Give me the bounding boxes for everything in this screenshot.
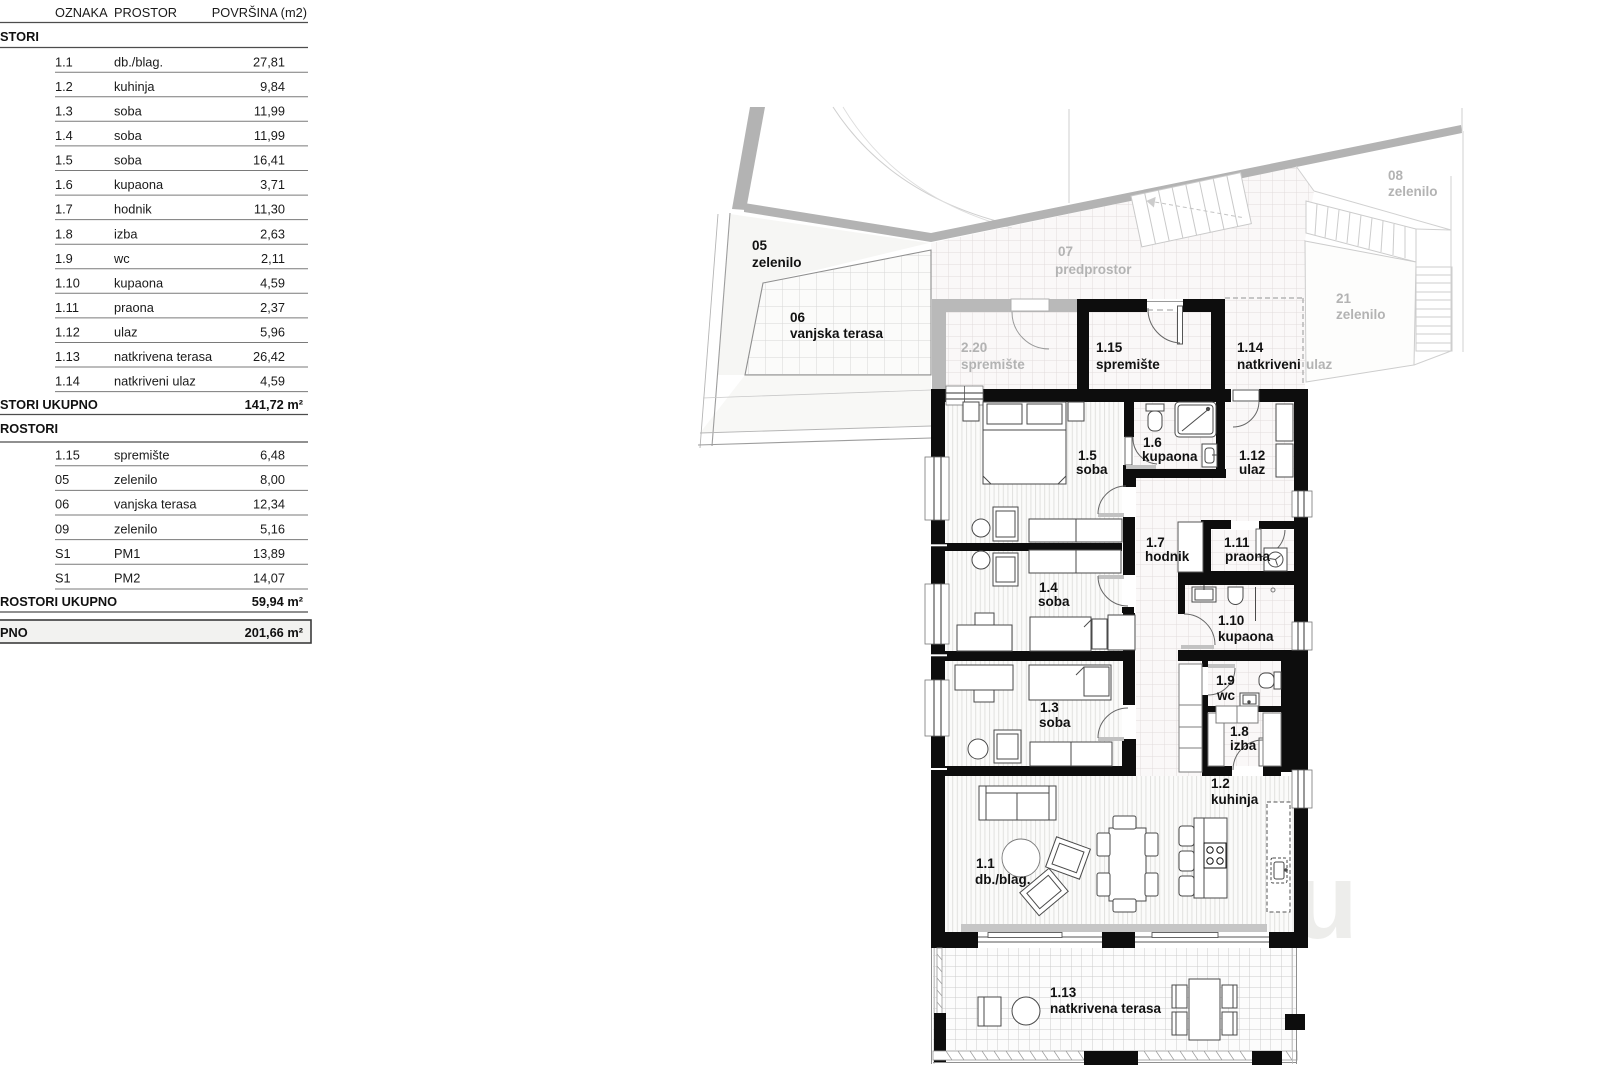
svg-text:1.8: 1.8: [55, 226, 73, 241]
svg-text:1.10: 1.10: [1218, 613, 1244, 628]
svg-text:4,59: 4,59: [260, 275, 285, 290]
svg-text:2,37: 2,37: [260, 300, 285, 315]
svg-text:soba: soba: [1076, 462, 1108, 477]
svg-text:1.9: 1.9: [55, 251, 73, 266]
svg-text:1.14: 1.14: [1237, 340, 1264, 355]
svg-text:PM2: PM2: [114, 571, 140, 586]
svg-text:05: 05: [752, 238, 768, 253]
svg-text:natkriveni: natkriveni: [1237, 357, 1301, 372]
svg-text:zelenilo: zelenilo: [114, 521, 157, 536]
svg-text:6,48: 6,48: [260, 448, 285, 463]
svg-text:1.6: 1.6: [1143, 435, 1162, 450]
svg-text:izba: izba: [114, 226, 138, 241]
svg-text:db./blag.: db./blag.: [975, 872, 1031, 887]
svg-text:PNO: PNO: [0, 625, 28, 640]
svg-text:11,30: 11,30: [254, 202, 285, 217]
svg-text:141,72 m²: 141,72 m²: [245, 397, 303, 412]
svg-text:1.4: 1.4: [55, 128, 73, 143]
svg-text:11,99: 11,99: [254, 128, 285, 143]
svg-text:1.5: 1.5: [1078, 448, 1097, 463]
svg-text:06: 06: [55, 497, 69, 512]
svg-text:21: 21: [1336, 291, 1352, 306]
svg-text:2,63: 2,63: [260, 226, 285, 241]
svg-text:1.12: 1.12: [55, 325, 80, 340]
svg-text:kuhinja: kuhinja: [114, 79, 155, 94]
svg-text:8,00: 8,00: [260, 472, 285, 487]
svg-text:1.1: 1.1: [976, 856, 995, 871]
svg-text:soba: soba: [114, 103, 143, 118]
svg-text:spremište: spremište: [1096, 357, 1160, 372]
svg-text:1.12: 1.12: [1239, 448, 1265, 463]
svg-text:1.4: 1.4: [1039, 580, 1058, 595]
svg-text:1.3: 1.3: [55, 103, 73, 118]
svg-text:1.11: 1.11: [55, 300, 79, 315]
svg-text:12,34: 12,34: [253, 497, 285, 512]
svg-text:STORI UKUPNO: STORI UKUPNO: [0, 397, 98, 412]
svg-text:soba: soba: [1038, 594, 1070, 609]
svg-text:2,11: 2,11: [261, 251, 285, 266]
svg-text:soba: soba: [114, 128, 143, 143]
svg-text:1.14: 1.14: [55, 374, 80, 389]
svg-text:201,66 m²: 201,66 m²: [245, 625, 303, 640]
svg-text:STORI: STORI: [0, 29, 39, 44]
svg-text:zelenilo: zelenilo: [114, 472, 157, 487]
svg-text:1.10: 1.10: [55, 275, 80, 290]
svg-text:ulaz: ulaz: [1239, 462, 1266, 477]
svg-text:natkrivena terasa: natkrivena terasa: [114, 349, 213, 364]
svg-text:ROSTORI UKUPNO: ROSTORI UKUPNO: [0, 594, 117, 609]
svg-text:kupaona: kupaona: [114, 275, 164, 290]
svg-text:05: 05: [55, 472, 69, 487]
svg-text:zelenilo: zelenilo: [1388, 184, 1438, 199]
svg-text:OZNAKA: OZNAKA: [55, 5, 108, 20]
svg-text:soba: soba: [1039, 715, 1071, 730]
svg-text:1.15: 1.15: [1096, 340, 1123, 355]
svg-text:16,41: 16,41: [253, 153, 285, 168]
svg-text:natkriveni ulaz: natkriveni ulaz: [114, 374, 196, 389]
svg-text:ulaz: ulaz: [1306, 357, 1333, 372]
svg-text:spremište: spremište: [114, 448, 169, 463]
svg-text:db./blag.: db./blag.: [114, 54, 163, 69]
svg-text:1.13: 1.13: [55, 349, 80, 364]
svg-text:hodnik: hodnik: [1145, 549, 1190, 564]
svg-text:09: 09: [55, 521, 69, 536]
svg-text:1.7: 1.7: [1146, 535, 1165, 550]
svg-text:27,81: 27,81: [253, 54, 285, 69]
svg-text:zelenilo: zelenilo: [1336, 307, 1386, 322]
svg-text:06: 06: [790, 310, 806, 325]
svg-text:5,16: 5,16: [260, 521, 285, 536]
svg-text:hodnik: hodnik: [114, 202, 152, 217]
svg-text:07: 07: [1058, 244, 1073, 259]
svg-text:spremište: spremište: [961, 357, 1025, 372]
svg-text:1.7: 1.7: [55, 202, 73, 217]
svg-text:1.3: 1.3: [1040, 700, 1059, 715]
svg-text:4,59: 4,59: [260, 374, 285, 389]
svg-text:5,96: 5,96: [260, 325, 285, 340]
svg-text:kupaona: kupaona: [114, 177, 164, 192]
svg-text:soba: soba: [114, 153, 143, 168]
svg-text:wc: wc: [113, 251, 130, 266]
svg-text:izba: izba: [1230, 738, 1257, 753]
svg-text:predprostor: predprostor: [1055, 262, 1132, 277]
svg-text:1.8: 1.8: [1230, 724, 1249, 739]
svg-text:1.15: 1.15: [55, 448, 80, 463]
svg-text:praona: praona: [1225, 549, 1271, 564]
svg-text:9,84: 9,84: [260, 79, 285, 94]
svg-text:vanjska terasa: vanjska terasa: [114, 497, 197, 512]
svg-text:1.2: 1.2: [55, 79, 73, 94]
svg-text:11,99: 11,99: [254, 103, 285, 118]
svg-text:ROSTORI: ROSTORI: [0, 421, 58, 436]
svg-text:1.2: 1.2: [1211, 776, 1230, 791]
svg-text:3,71: 3,71: [260, 177, 285, 192]
svg-text:praona: praona: [114, 300, 155, 315]
svg-text:wc: wc: [1216, 688, 1236, 703]
svg-text:kuhinja: kuhinja: [1211, 792, 1259, 807]
svg-text:S1: S1: [55, 571, 71, 586]
svg-text:2.20: 2.20: [961, 340, 987, 355]
svg-text:kupaona: kupaona: [1218, 629, 1274, 644]
svg-text:59,94 m²: 59,94 m²: [252, 594, 303, 609]
svg-text:PM1: PM1: [114, 546, 140, 561]
svg-text:1.1: 1.1: [55, 54, 73, 69]
svg-text:1.6: 1.6: [55, 177, 73, 192]
svg-text:vanjska terasa: vanjska terasa: [790, 326, 884, 341]
svg-text:ulaz: ulaz: [114, 325, 137, 340]
svg-text:natkrivena terasa: natkrivena terasa: [1050, 1001, 1162, 1016]
svg-text:POVRŠINA (m2): POVRŠINA (m2): [212, 5, 307, 20]
svg-text:1.9: 1.9: [1216, 673, 1235, 688]
svg-text:S1: S1: [55, 546, 71, 561]
svg-text:1.5: 1.5: [55, 153, 73, 168]
svg-text:1.11: 1.11: [1224, 535, 1250, 550]
svg-text:1.13: 1.13: [1050, 985, 1077, 1000]
svg-text:08: 08: [1388, 168, 1404, 183]
svg-text:kupaona: kupaona: [1142, 449, 1198, 464]
svg-text:13,89: 13,89: [253, 546, 285, 561]
svg-text:14,07: 14,07: [253, 571, 285, 586]
svg-text:PROSTOR: PROSTOR: [114, 5, 177, 20]
svg-text:zelenilo: zelenilo: [752, 255, 802, 270]
svg-text:26,42: 26,42: [253, 349, 285, 364]
